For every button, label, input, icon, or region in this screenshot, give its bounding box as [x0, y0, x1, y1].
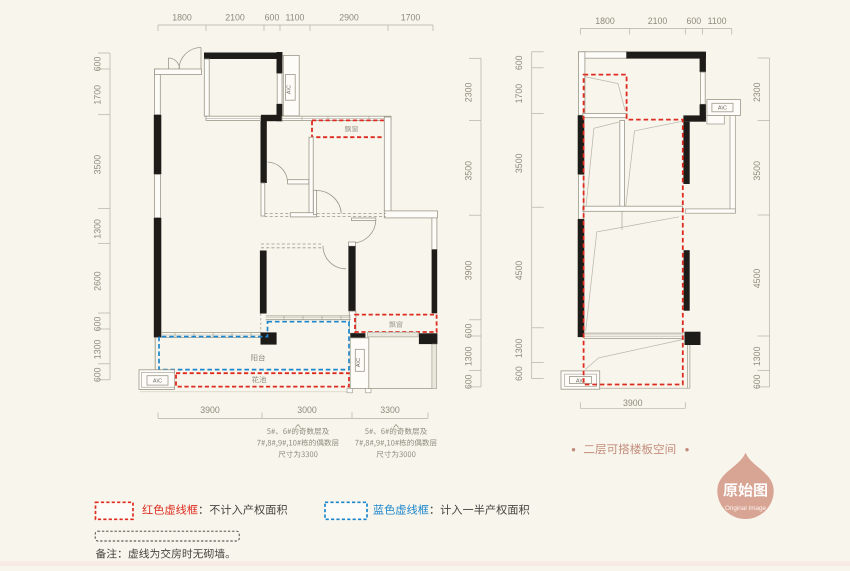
svg-text:3500: 3500 [464, 161, 474, 181]
svg-text:1300: 1300 [752, 346, 762, 366]
svg-text:600: 600 [752, 374, 762, 389]
svg-text:A\C: A\C [356, 358, 362, 367]
svg-text:2300: 2300 [464, 83, 474, 103]
svg-text:2900: 2900 [339, 13, 359, 23]
svg-text:600: 600 [93, 317, 103, 332]
svg-text:1800: 1800 [595, 16, 615, 26]
svg-text:1700: 1700 [401, 13, 421, 23]
svg-text:600: 600 [265, 13, 280, 23]
svg-text:1300: 1300 [93, 340, 103, 360]
svg-text:3900: 3900 [200, 405, 220, 415]
svg-text:600: 600 [514, 366, 524, 381]
svg-text:Original Image: Original Image [725, 505, 766, 512]
svg-text:1700: 1700 [93, 85, 103, 105]
svg-text:1300: 1300 [93, 219, 103, 239]
svg-text:3900: 3900 [623, 398, 643, 408]
svg-text:3500: 3500 [752, 161, 762, 181]
svg-text:2100: 2100 [648, 16, 668, 26]
svg-text:2600: 2600 [93, 271, 103, 291]
svg-text:3500: 3500 [514, 153, 524, 173]
svg-text:600: 600 [93, 57, 103, 72]
svg-text:600: 600 [93, 367, 103, 382]
svg-text:A\C: A\C [153, 379, 162, 385]
svg-text:1700: 1700 [514, 84, 524, 104]
svg-text:4500: 4500 [514, 261, 524, 281]
svg-text:1300: 1300 [464, 346, 474, 366]
svg-text:1100: 1100 [286, 13, 305, 23]
svg-text:600: 600 [514, 55, 524, 70]
svg-text:A\C: A\C [286, 85, 292, 94]
svg-text:600: 600 [464, 323, 474, 338]
svg-text:3300: 3300 [380, 405, 400, 415]
svg-text:2100: 2100 [225, 13, 245, 23]
svg-text:A\C: A\C [718, 106, 727, 112]
svg-text:3900: 3900 [464, 261, 474, 281]
svg-text:3500: 3500 [93, 155, 103, 175]
svg-text:1100: 1100 [708, 16, 727, 26]
svg-text:2300: 2300 [752, 82, 762, 102]
svg-text:1300: 1300 [514, 338, 524, 358]
svg-text:3000: 3000 [297, 405, 317, 415]
svg-text:1800: 1800 [172, 13, 192, 23]
svg-text:600: 600 [686, 16, 701, 26]
svg-text:4500: 4500 [752, 269, 762, 289]
svg-text:600: 600 [464, 374, 474, 389]
